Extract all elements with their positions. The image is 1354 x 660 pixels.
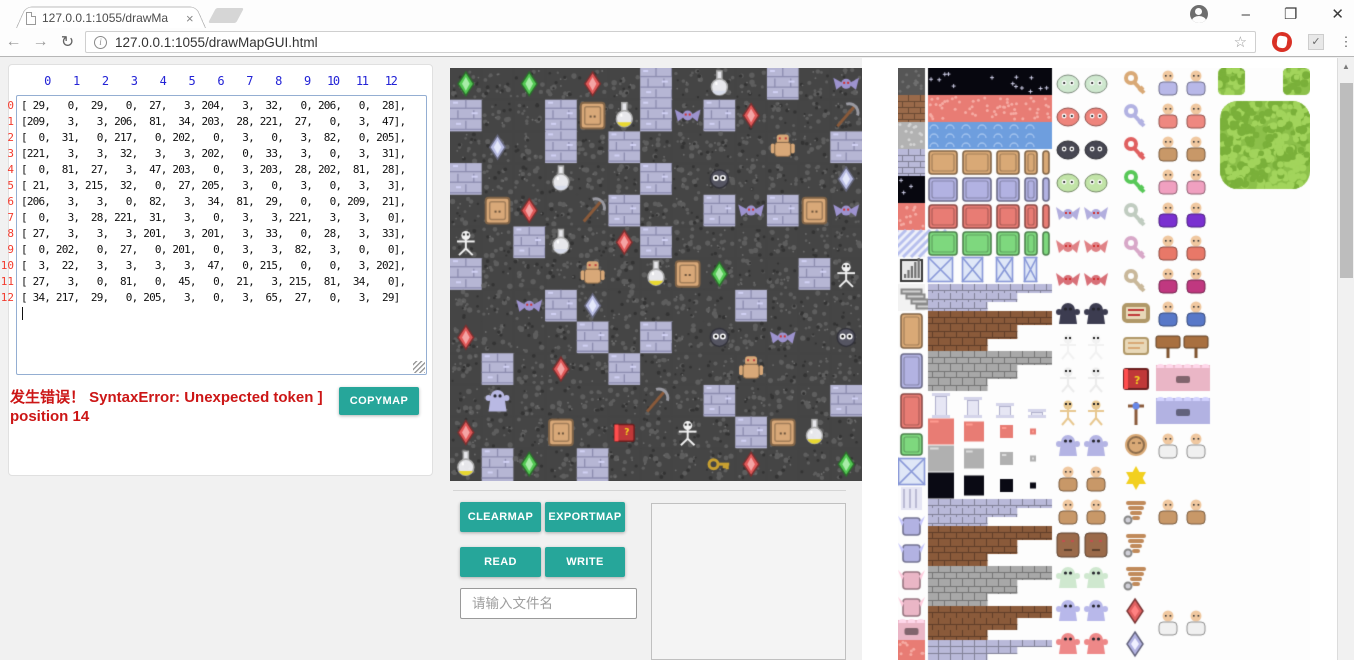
- browser-titlebar: 127.0.0.1:1055/drawMa × – ❐ ✕: [0, 0, 1354, 28]
- copymap-button[interactable]: COPYMAP: [339, 387, 419, 415]
- back-button[interactable]: ←: [0, 33, 27, 51]
- extension-check-icon[interactable]: ✓: [1308, 34, 1324, 50]
- bookmark-star-icon[interactable]: ☆: [1234, 33, 1247, 51]
- filename-input[interactable]: [460, 588, 637, 619]
- info-icon[interactable]: i: [94, 36, 107, 49]
- scrollbar-up-arrow[interactable]: ▲: [1338, 60, 1354, 74]
- browser-menu-icon[interactable]: ⋮: [1338, 34, 1354, 50]
- write-button[interactable]: WRITE: [545, 547, 625, 577]
- exportmap-button[interactable]: EXPORTMAP: [545, 502, 625, 532]
- browser-toolbar: ← → ↻ i 127.0.0.1:1055/drawMapGUI.html ☆…: [0, 28, 1354, 57]
- textarea-resize-grip[interactable]: [413, 361, 425, 373]
- matrix-text: [ 29, 0, 29, 0, 27, 3, 204, 3, 32, 0, 20…: [21, 98, 405, 306]
- map-canvas[interactable]: [450, 68, 862, 481]
- clearmap-button[interactable]: CLEARMAP: [460, 502, 541, 532]
- text-caret: [22, 307, 23, 320]
- window-restore-button[interactable]: ❐: [1284, 5, 1297, 23]
- vertical-scrollbar[interactable]: ▲: [1337, 58, 1354, 660]
- reload-button[interactable]: ↻: [54, 32, 81, 52]
- matrix-column-headers: 0 1 2 3 4 5 6 7 8 9 10 11 12: [21, 74, 396, 88]
- matrix-row-headers: 0 1 2 3 4 5 6 7 8 9 10 11 12: [0, 98, 14, 306]
- profile-icon[interactable]: [1190, 5, 1208, 23]
- error-message: 发生错误！ SyntaxError: Unexpected token ] po…: [10, 388, 340, 426]
- new-tab-button[interactable]: [208, 8, 244, 23]
- tab-close-icon[interactable]: ×: [186, 11, 194, 26]
- tileset-palette[interactable]: [898, 68, 1310, 660]
- output-box[interactable]: [651, 503, 846, 660]
- window-minimize-button[interactable]: –: [1242, 6, 1250, 23]
- tab-title: 127.0.0.1:1055/drawMa: [42, 11, 180, 25]
- page-favicon-icon: [26, 12, 36, 25]
- scrollbar-thumb[interactable]: [1340, 83, 1353, 278]
- extension-hand-icon[interactable]: [1272, 32, 1292, 52]
- read-button[interactable]: READ: [460, 547, 541, 577]
- window-close-button[interactable]: ✕: [1331, 5, 1344, 23]
- url-text: 127.0.0.1:1055/drawMapGUI.html: [115, 35, 1234, 50]
- matrix-textarea[interactable]: [ 29, 0, 29, 0, 27, 3, 204, 3, 32, 0, 20…: [16, 95, 427, 375]
- browser-tab[interactable]: 127.0.0.1:1055/drawMa ×: [16, 4, 206, 28]
- address-bar[interactable]: i 127.0.0.1:1055/drawMapGUI.html ☆: [85, 31, 1256, 53]
- forward-button[interactable]: →: [27, 33, 54, 51]
- divider: [453, 490, 846, 491]
